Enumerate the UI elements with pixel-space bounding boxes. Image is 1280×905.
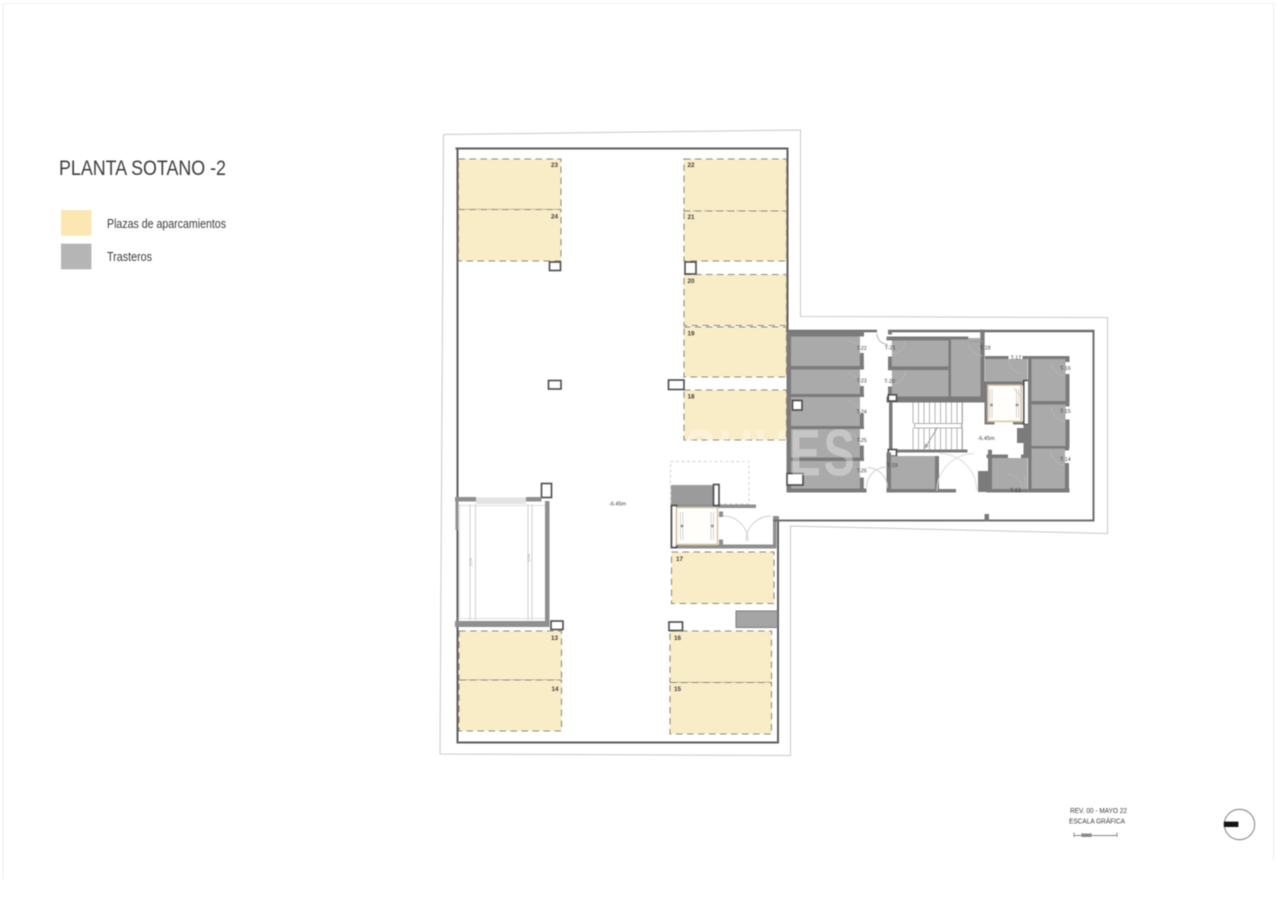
svg-text:T-13: T-13 (1010, 488, 1021, 494)
svg-text:T-25: T-25 (857, 438, 867, 444)
svg-text:T-16: T-16 (1060, 366, 1071, 372)
svg-text:T-15: T-15 (1060, 409, 1071, 415)
svg-text:SUVES: SUVES (685, 416, 858, 490)
svg-text:13: 13 (551, 635, 559, 642)
svg-text:14: 14 (551, 686, 559, 693)
svg-text:T-18: T-18 (980, 346, 991, 352)
svg-text:16: 16 (674, 635, 682, 642)
svg-text:T-19: T-19 (887, 463, 898, 469)
svg-text:T-24: T-24 (857, 410, 867, 416)
svg-text:T-20: T-20 (884, 379, 895, 385)
svg-text:PLANTA SOTANO -2: PLANTA SOTANO -2 (59, 156, 226, 180)
svg-text:-6.45m: -6.45m (978, 436, 996, 442)
svg-text:21: 21 (688, 214, 696, 221)
svg-text:T-26: T-26 (857, 469, 867, 475)
svg-text:20: 20 (688, 278, 696, 285)
svg-text:T-22: T-22 (857, 346, 867, 352)
svg-text:Plazas de aparcamientos: Plazas de aparcamientos (107, 217, 226, 231)
svg-text:12%: 12% (526, 554, 531, 562)
svg-text:-6.45m: -6.45m (609, 502, 627, 508)
svg-text:T-17: T-17 (1011, 356, 1022, 362)
svg-text:22: 22 (688, 162, 696, 169)
svg-text:12%: 12% (468, 558, 473, 566)
svg-text:17: 17 (676, 556, 684, 563)
svg-text:T-21: T-21 (885, 345, 896, 351)
svg-text:T-23: T-23 (857, 379, 867, 385)
svg-text:19: 19 (688, 331, 696, 338)
svg-text:15: 15 (674, 686, 682, 693)
svg-text:23: 23 (551, 162, 559, 169)
svg-text:T-14: T-14 (1060, 457, 1071, 463)
svg-text:ESCALA GRÁFICA: ESCALA GRÁFICA (1069, 817, 1125, 826)
svg-text:Trasteros: Trasteros (107, 250, 152, 264)
svg-text:18: 18 (688, 394, 696, 401)
svg-text:24: 24 (551, 214, 559, 221)
svg-text:REV. 00 - MAYO 22: REV. 00 - MAYO 22 (1070, 806, 1127, 815)
